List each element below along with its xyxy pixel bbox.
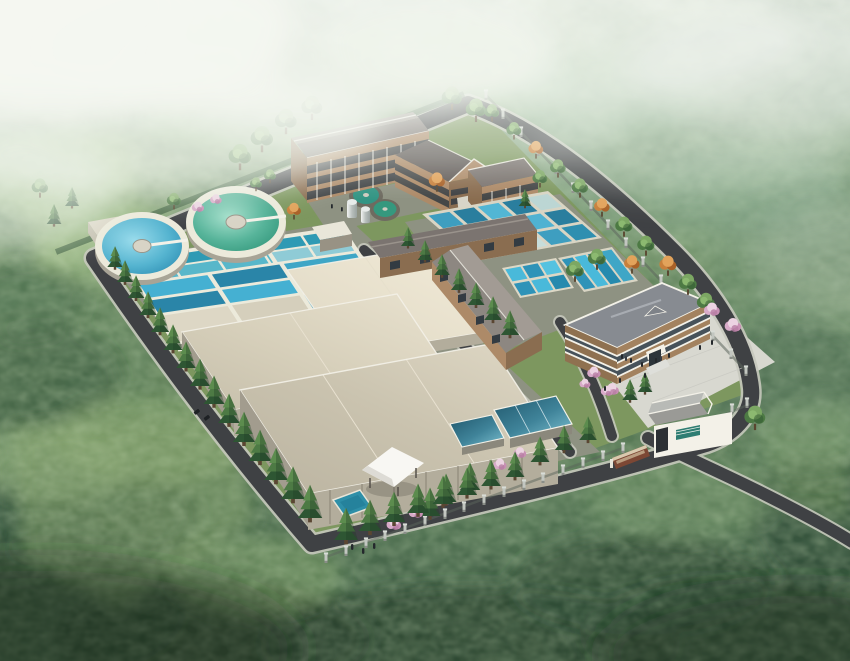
dosing-tank-2 xyxy=(370,199,400,221)
clarifier-tank-1 xyxy=(95,212,189,285)
rendering-viewport xyxy=(0,0,850,661)
gate-arch xyxy=(656,427,668,453)
water-plant-aerial-rendering xyxy=(0,0,850,661)
